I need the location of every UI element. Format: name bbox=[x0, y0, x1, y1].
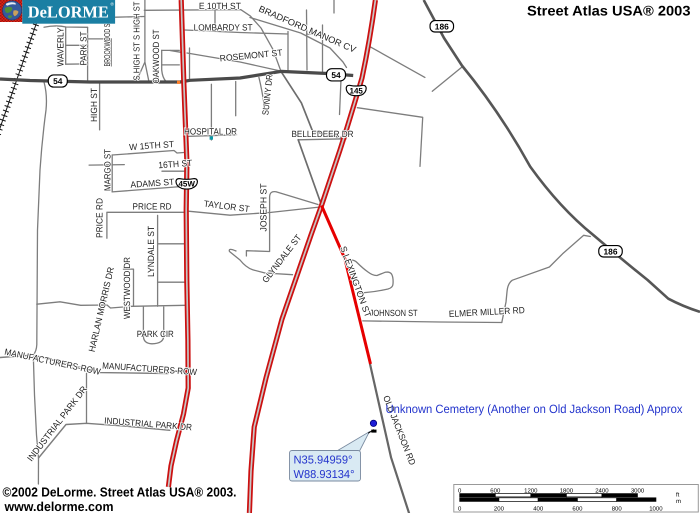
svg-text:PRICE RD: PRICE RD bbox=[133, 201, 172, 211]
svg-text:N35.94959°: N35.94959° bbox=[294, 454, 353, 466]
svg-text:JOHNSON ST: JOHNSON ST bbox=[370, 308, 418, 318]
svg-text:54: 54 bbox=[53, 76, 63, 86]
svg-text:E 10TH ST: E 10TH ST bbox=[199, 1, 241, 11]
svg-text:Street Atlas USA® 2003: Street Atlas USA® 2003 bbox=[527, 2, 691, 18]
svg-text:DeLORME: DeLORME bbox=[28, 3, 109, 22]
svg-text:HOSPITAL DR: HOSPITAL DR bbox=[184, 126, 237, 136]
svg-text:m: m bbox=[676, 499, 681, 505]
svg-text:ft: ft bbox=[676, 492, 680, 499]
svg-text:1800: 1800 bbox=[560, 487, 574, 494]
svg-text:1200: 1200 bbox=[524, 487, 538, 494]
svg-text:HIGH ST: HIGH ST bbox=[89, 88, 99, 122]
svg-text:PRICE RD: PRICE RD bbox=[95, 198, 105, 238]
svg-text:400: 400 bbox=[533, 506, 544, 513]
svg-text:200: 200 bbox=[494, 506, 505, 513]
svg-text:BROOKWOOD S: BROOKWOOD S bbox=[102, 23, 112, 66]
svg-text:JOSEPH ST: JOSEPH ST bbox=[259, 183, 269, 231]
svg-text:LYNDALE ST: LYNDALE ST bbox=[146, 226, 156, 277]
svg-text:PARK CIR: PARK CIR bbox=[137, 329, 174, 339]
svg-text:LOMBARDY ST: LOMBARDY ST bbox=[194, 23, 253, 33]
svg-text:186: 186 bbox=[435, 21, 449, 31]
svg-text:WESTWOOD DR: WESTWOOD DR bbox=[122, 257, 132, 319]
svg-text:S HIGH ST S HIGH ST: S HIGH ST S HIGH ST bbox=[132, 1, 142, 81]
svg-text:3000: 3000 bbox=[631, 487, 645, 494]
svg-text:54: 54 bbox=[331, 70, 341, 80]
svg-text:1000: 1000 bbox=[649, 506, 663, 513]
svg-text:45W: 45W bbox=[178, 180, 195, 189]
svg-text:www.delorme.com: www.delorme.com bbox=[4, 499, 114, 513]
svg-text:2400: 2400 bbox=[595, 487, 609, 494]
svg-text:WAVERLY: WAVERLY bbox=[56, 28, 66, 67]
svg-text:BELLEDEER DR: BELLEDEER DR bbox=[292, 129, 354, 139]
svg-text:©2002 DeLorme. Street Atlas US: ©2002 DeLorme. Street Atlas USA® 2003. bbox=[3, 484, 237, 499]
svg-text:800: 800 bbox=[612, 506, 623, 513]
svg-text:145: 145 bbox=[350, 86, 364, 95]
svg-text:MARGO ST: MARGO ST bbox=[103, 149, 113, 191]
svg-text:186: 186 bbox=[604, 246, 618, 256]
svg-text:OAKWOOD ST: OAKWOOD ST bbox=[151, 29, 161, 83]
svg-text:600: 600 bbox=[490, 487, 501, 494]
svg-text:600: 600 bbox=[572, 506, 583, 513]
svg-text:PARK ST: PARK ST bbox=[79, 31, 89, 65]
svg-text:Unknown Cemetery (Another on O: Unknown Cemetery (Another on Old Jackson… bbox=[386, 402, 683, 416]
svg-text:W88.93134°: W88.93134° bbox=[294, 469, 355, 481]
